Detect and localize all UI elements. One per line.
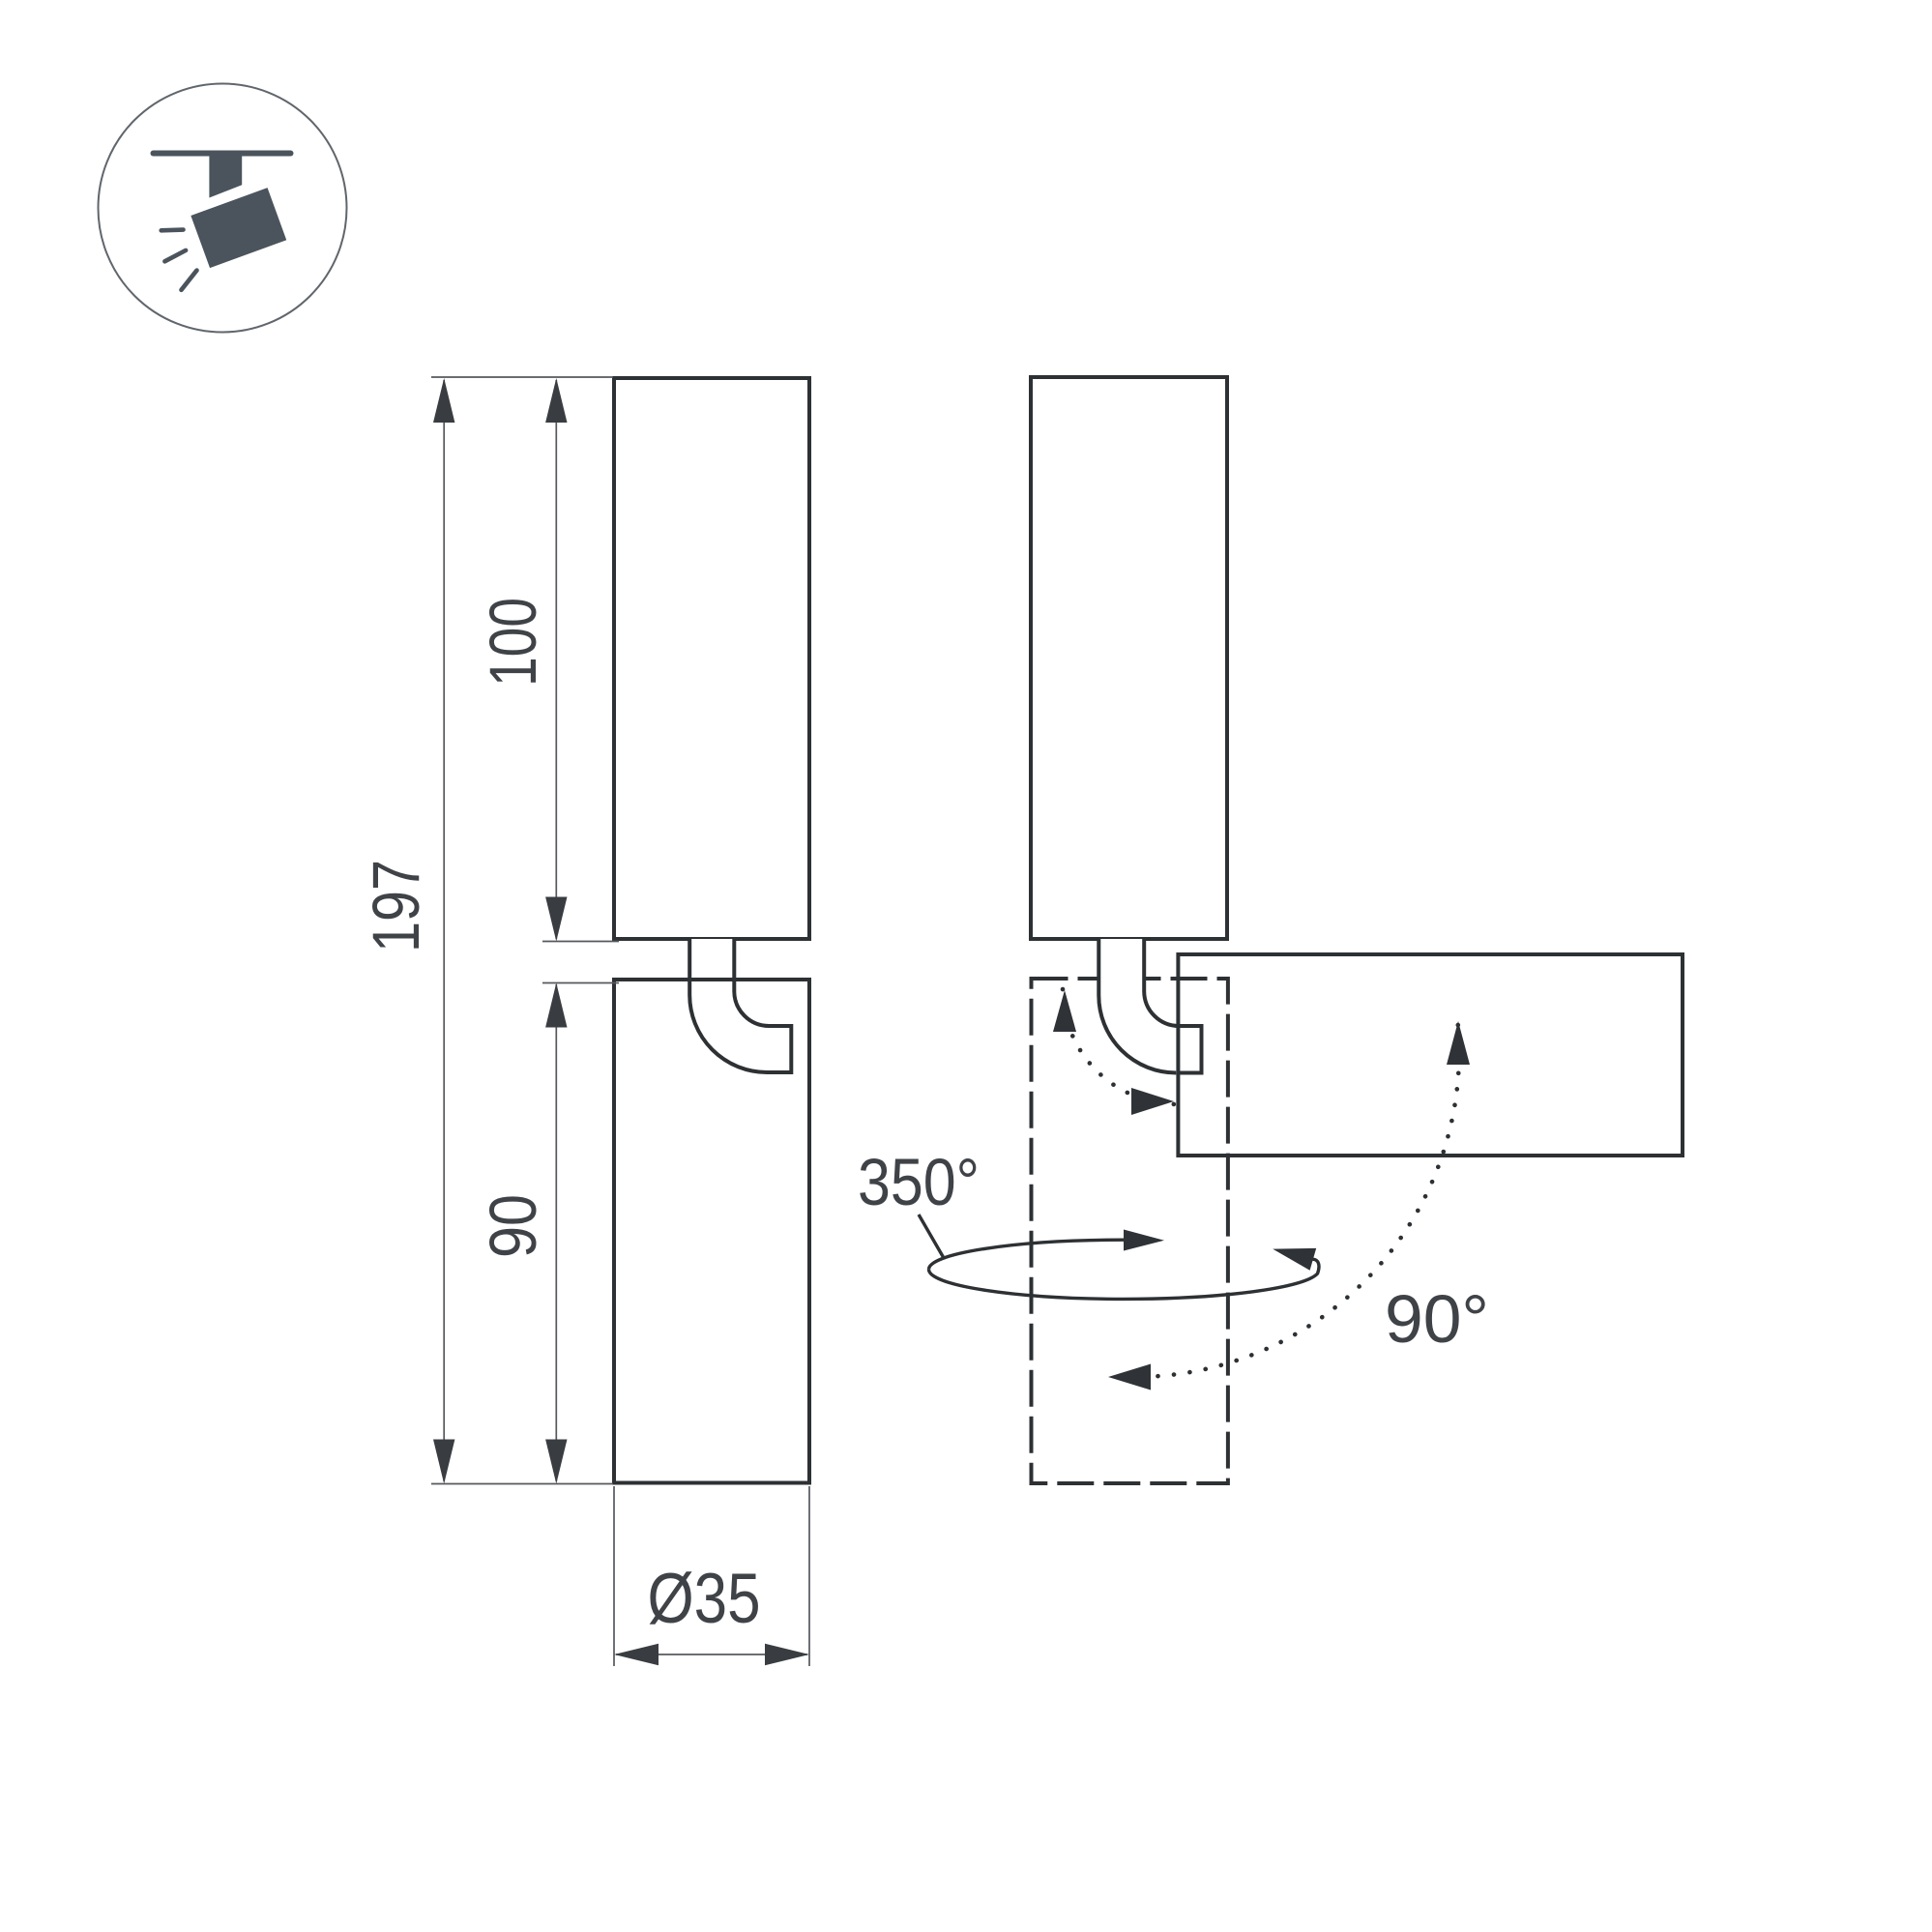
svg-text:100: 100	[476, 598, 550, 687]
svg-text:350°: 350°	[858, 1145, 980, 1219]
svg-text:90°: 90°	[1385, 1281, 1489, 1357]
svg-text:Ø35: Ø35	[648, 1560, 761, 1638]
svg-text:90: 90	[476, 1194, 550, 1258]
svg-text:197: 197	[359, 860, 433, 952]
